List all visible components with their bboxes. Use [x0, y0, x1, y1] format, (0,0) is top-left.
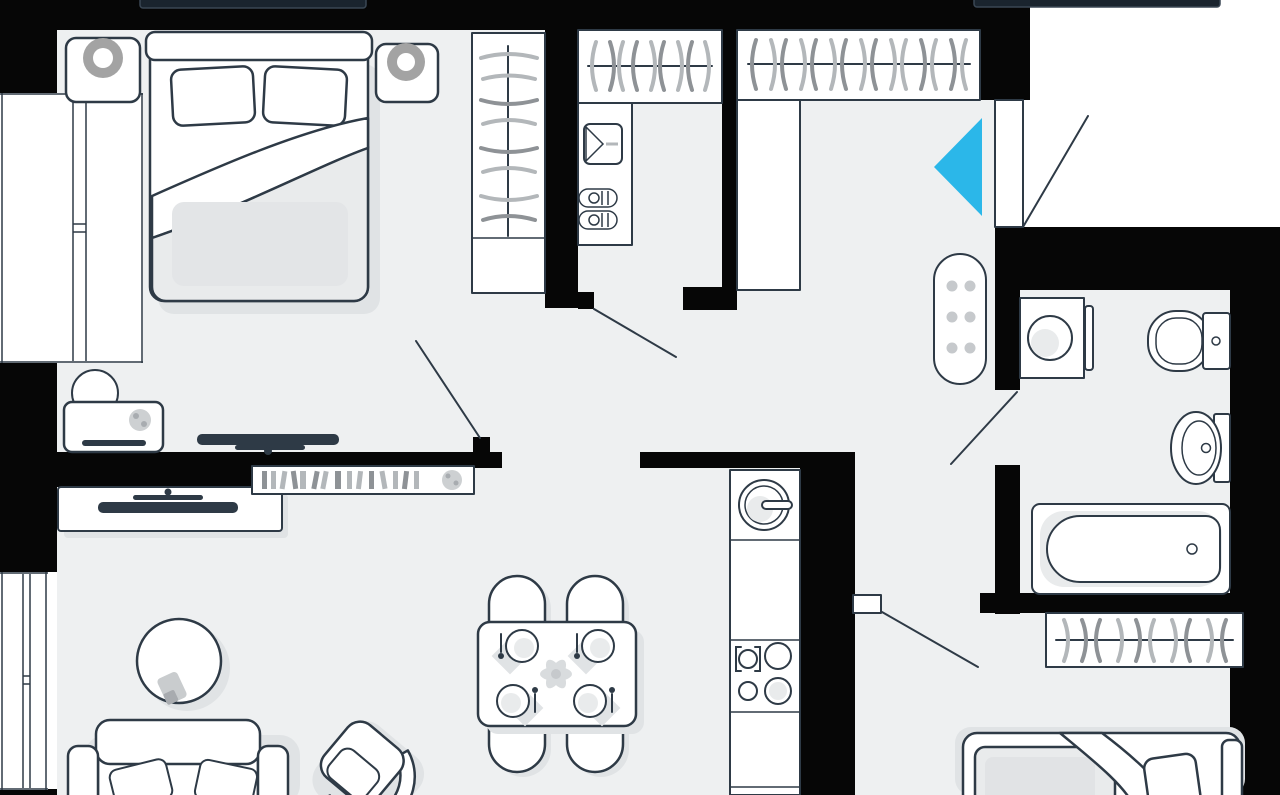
dining-chair — [567, 576, 623, 626]
window-bay-body — [0, 93, 143, 363]
shelf-plant — [442, 470, 462, 490]
wall-left-upper — [0, 30, 57, 93]
washer-door — [1085, 306, 1093, 370]
bedroom2-door-jamb — [853, 595, 881, 613]
toilet-tank — [1203, 313, 1230, 369]
washing-machine — [1020, 298, 1093, 378]
entry-door-jamb — [995, 100, 1023, 227]
sofa-arm-right — [258, 746, 288, 795]
tv-living — [98, 502, 238, 513]
wall-bath-left-b — [995, 465, 1020, 614]
lamp-left-inner — [93, 48, 113, 68]
window-bay-bedroom — [0, 93, 143, 363]
entry-bench — [934, 254, 986, 384]
bed-pillow — [1143, 753, 1202, 795]
kitchen — [730, 470, 800, 795]
wall-bedroom-closet — [545, 30, 578, 308]
single-bed — [955, 727, 1245, 795]
floor-bedroom2-doorway — [881, 593, 980, 613]
wall-left-middle — [0, 363, 57, 572]
wall-top-right-corner — [980, 30, 1030, 100]
sink-faucet — [762, 501, 792, 509]
sofa-arm-left — [68, 746, 98, 795]
wall-bath-bottom — [980, 593, 1247, 613]
sofa-back — [96, 720, 260, 764]
dining-chair — [489, 576, 545, 626]
wall-kitchen-right — [800, 468, 855, 795]
wardrobe-bedroom2 — [1046, 613, 1243, 667]
closet-2-cabinet — [737, 100, 800, 290]
plant-detail — [141, 421, 147, 427]
closet-1 — [578, 30, 722, 103]
wardrobe-bedroom — [472, 33, 545, 293]
basin-bowl — [1171, 412, 1221, 484]
floor-plan-canvas — [0, 0, 1280, 795]
wall-right — [1230, 234, 1280, 795]
laptop — [82, 440, 146, 446]
bookshelf — [252, 466, 474, 494]
shoe-cabinet — [578, 103, 632, 245]
bench-body — [934, 254, 986, 384]
exterior-bar-right — [974, 0, 1220, 7]
wall-kitchen-top — [640, 452, 855, 468]
toilet — [1148, 311, 1230, 371]
wash-basin — [1171, 412, 1230, 484]
blanket-inset — [172, 202, 348, 286]
bed-headboard — [146, 32, 372, 60]
wall-hall-door-jamb — [578, 292, 594, 309]
wall-bedroom-door-jamb — [473, 437, 490, 453]
toilet-bowl — [1148, 311, 1210, 371]
floor-plan — [0, 0, 1280, 795]
wall-bath-left-a — [995, 290, 1020, 390]
window-bay-living — [0, 572, 48, 790]
exterior-bar-left — [140, 0, 366, 8]
bathtub — [1032, 504, 1230, 594]
plant-detail — [133, 413, 139, 419]
wall-bedroom-living-thick — [55, 468, 251, 487]
lamp-right-inner — [397, 53, 415, 71]
desk-plant — [129, 409, 151, 431]
blanket-inset — [985, 757, 1095, 795]
tub-inner — [1047, 516, 1220, 582]
outside — [1023, 0, 1280, 230]
bed-headboard — [1222, 740, 1242, 795]
outside-top-right — [1030, 0, 1280, 100]
pillow-right — [263, 66, 348, 126]
washer-drum-shade — [1031, 329, 1059, 357]
pillow-left — [171, 66, 256, 126]
window-bay-body — [0, 572, 48, 790]
wall-hall-stub — [683, 287, 737, 310]
wall-closet2-side — [722, 103, 737, 291]
